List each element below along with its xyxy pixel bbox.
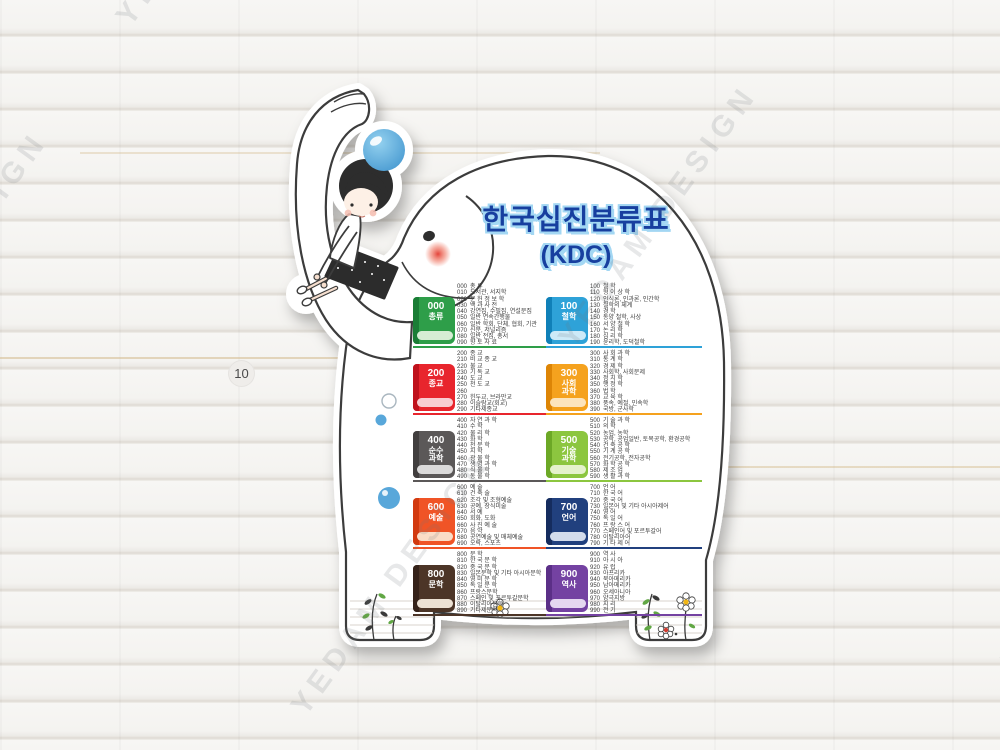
section-divider	[413, 547, 559, 549]
section-rows: 800문 학810한 국 문 학820중 국 문 학830일본문학 및 기타 아…	[457, 552, 541, 615]
section-200: 200종교200종 교210비 교 종 교220불 교230기 독 교240도 …	[413, 350, 561, 417]
blue-ball	[363, 129, 405, 171]
book-pages	[550, 599, 586, 608]
girl-hand	[314, 274, 320, 280]
section-400: 400순수과학400자 연 과 학410수 학420물 리 학430화 학440…	[413, 417, 561, 484]
section-rows: 000총 류010도서관, 서지학020문 헌 정 보 학030백 과 사 전0…	[457, 284, 537, 347]
girl-cheek-blush	[370, 210, 377, 217]
girl-eye-icon	[350, 203, 353, 206]
classification-column-right: 100철학100철 학110형 이 상 학120인식론, 인과론, 인간학130…	[546, 283, 704, 618]
book-pages	[550, 331, 586, 340]
girl-eye-icon	[369, 203, 372, 206]
section-600: 600예술600예 술610건 축 술620조각 및 조형예술630공예, 장식…	[413, 484, 561, 551]
book-name: 언어	[561, 514, 578, 523]
book-icon-200: 200종교	[413, 364, 455, 411]
section-300: 300사회과학300사 회 과 학310통 계 학320경 제 학330사회학,…	[546, 350, 704, 417]
section-100: 100철학100철 학110형 이 상 학120인식론, 인과론, 인간학130…	[546, 283, 704, 350]
bubble-large-highlight	[382, 490, 388, 496]
section-divider	[546, 346, 702, 348]
poster-title: 한국십진분류표	[440, 198, 712, 238]
section-divider	[546, 614, 702, 616]
section-divider	[546, 547, 702, 549]
book-pages	[417, 465, 453, 474]
section-rows: 200종 교210비 교 종 교220불 교230기 독 교240도 교250천…	[457, 351, 512, 414]
book-icon-700: 700언어	[546, 498, 588, 545]
section-divider	[546, 480, 702, 482]
book-pages	[550, 532, 586, 541]
girl-cheek-blush	[345, 210, 352, 217]
book-label: 800문학	[428, 570, 445, 589]
poster-title-block: 한국십진분류표 (KDC)	[440, 198, 712, 270]
classification-column-left: 000총류000총 류010도서관, 서지학020문 헌 정 보 학030백 과…	[413, 283, 561, 618]
section-800: 800문학800문 학810한 국 문 학820중 국 문 학830일본문학 및…	[413, 551, 561, 618]
book-label: 100철학	[561, 302, 578, 321]
section-divider	[413, 614, 559, 616]
section-rows: 600예 술610건 축 술620조각 및 조형예술630공예, 장식미술640…	[457, 485, 523, 548]
brick-wall-background: 10	[0, 0, 1000, 750]
book-pages	[417, 331, 453, 340]
bubble-outline	[382, 394, 396, 408]
section-rows: 400자 연 과 학410수 학420물 리 학430화 학440천 문 학45…	[457, 418, 497, 481]
girl-hand	[321, 282, 327, 288]
book-name: 과학	[428, 455, 445, 464]
book-pages	[417, 398, 453, 407]
section-rows: 100철 학110형 이 상 학120인식론, 인과론, 인간학130철학의 체…	[590, 284, 659, 347]
section-divider	[413, 346, 559, 348]
poster-subtitle: (KDC)	[440, 241, 712, 270]
section-rows: 500기 술 과 학510의 학520농업, 농학530공학, 공업일반, 토목…	[590, 418, 690, 481]
book-name: 철학	[561, 313, 578, 322]
book-name: 과학	[561, 388, 578, 397]
book-icon-800: 800문학	[413, 565, 455, 612]
book-icon-400: 400순수과학	[413, 431, 455, 478]
book-label: 200종교	[428, 369, 445, 388]
book-pages	[550, 465, 586, 474]
section-900: 900역사900역 사910아 시 아920유 럽930아프리카940북아메리카…	[546, 551, 704, 618]
bubble-large	[378, 487, 400, 509]
book-name: 종교	[428, 380, 445, 389]
section-divider	[413, 413, 559, 415]
book-label: 500기술과학	[561, 436, 578, 464]
entry-label: 천 도 교	[470, 382, 490, 388]
section-rows: 900역 사910아 시 아920유 럽930아프리카940북아메리카950남아…	[590, 552, 631, 615]
section-700: 700언어700언 어710한 국 어720중 국 어730일본어 및 기타 아…	[546, 484, 704, 551]
section-rows: 300사 회 과 학310통 계 학320경 제 학330사회학, 사회문제34…	[590, 351, 648, 414]
book-name: 과학	[561, 455, 578, 464]
book-name: 문학	[428, 581, 445, 590]
book-label: 700언어	[561, 503, 578, 522]
book-label: 400순수과학	[428, 436, 445, 464]
book-pages	[550, 398, 586, 407]
book-label: 600예술	[428, 503, 445, 522]
book-name: 총류	[428, 313, 445, 322]
book-name: 예술	[428, 514, 445, 523]
book-label: 900역사	[561, 570, 578, 589]
book-icon-300: 300사회과학	[546, 364, 588, 411]
book-pages	[417, 599, 453, 608]
section-divider	[546, 413, 702, 415]
section-500: 500기술과학500기 술 과 학510의 학520농업, 농학530공학, 공…	[546, 417, 704, 484]
book-name: 역사	[561, 581, 578, 590]
book-icon-900: 900역사	[546, 565, 588, 612]
section-divider	[413, 480, 559, 482]
section-rows: 700언 어710한 국 어720중 국 어730일본어 및 기타 아시아제어7…	[590, 485, 669, 548]
book-icon-100: 100철학	[546, 297, 588, 344]
book-icon-000: 000총류	[413, 297, 455, 344]
book-icon-600: 600예술	[413, 498, 455, 545]
book-label: 000총류	[428, 302, 445, 321]
section-000: 000총류000총 류010도서관, 서지학020문 헌 정 보 학030백 과…	[413, 283, 561, 350]
book-label: 300사회과학	[561, 369, 578, 397]
bubble-small	[376, 415, 387, 426]
girl-torso	[330, 214, 361, 268]
book-icon-500: 500기술과학	[546, 431, 588, 478]
book-pages	[417, 532, 453, 541]
